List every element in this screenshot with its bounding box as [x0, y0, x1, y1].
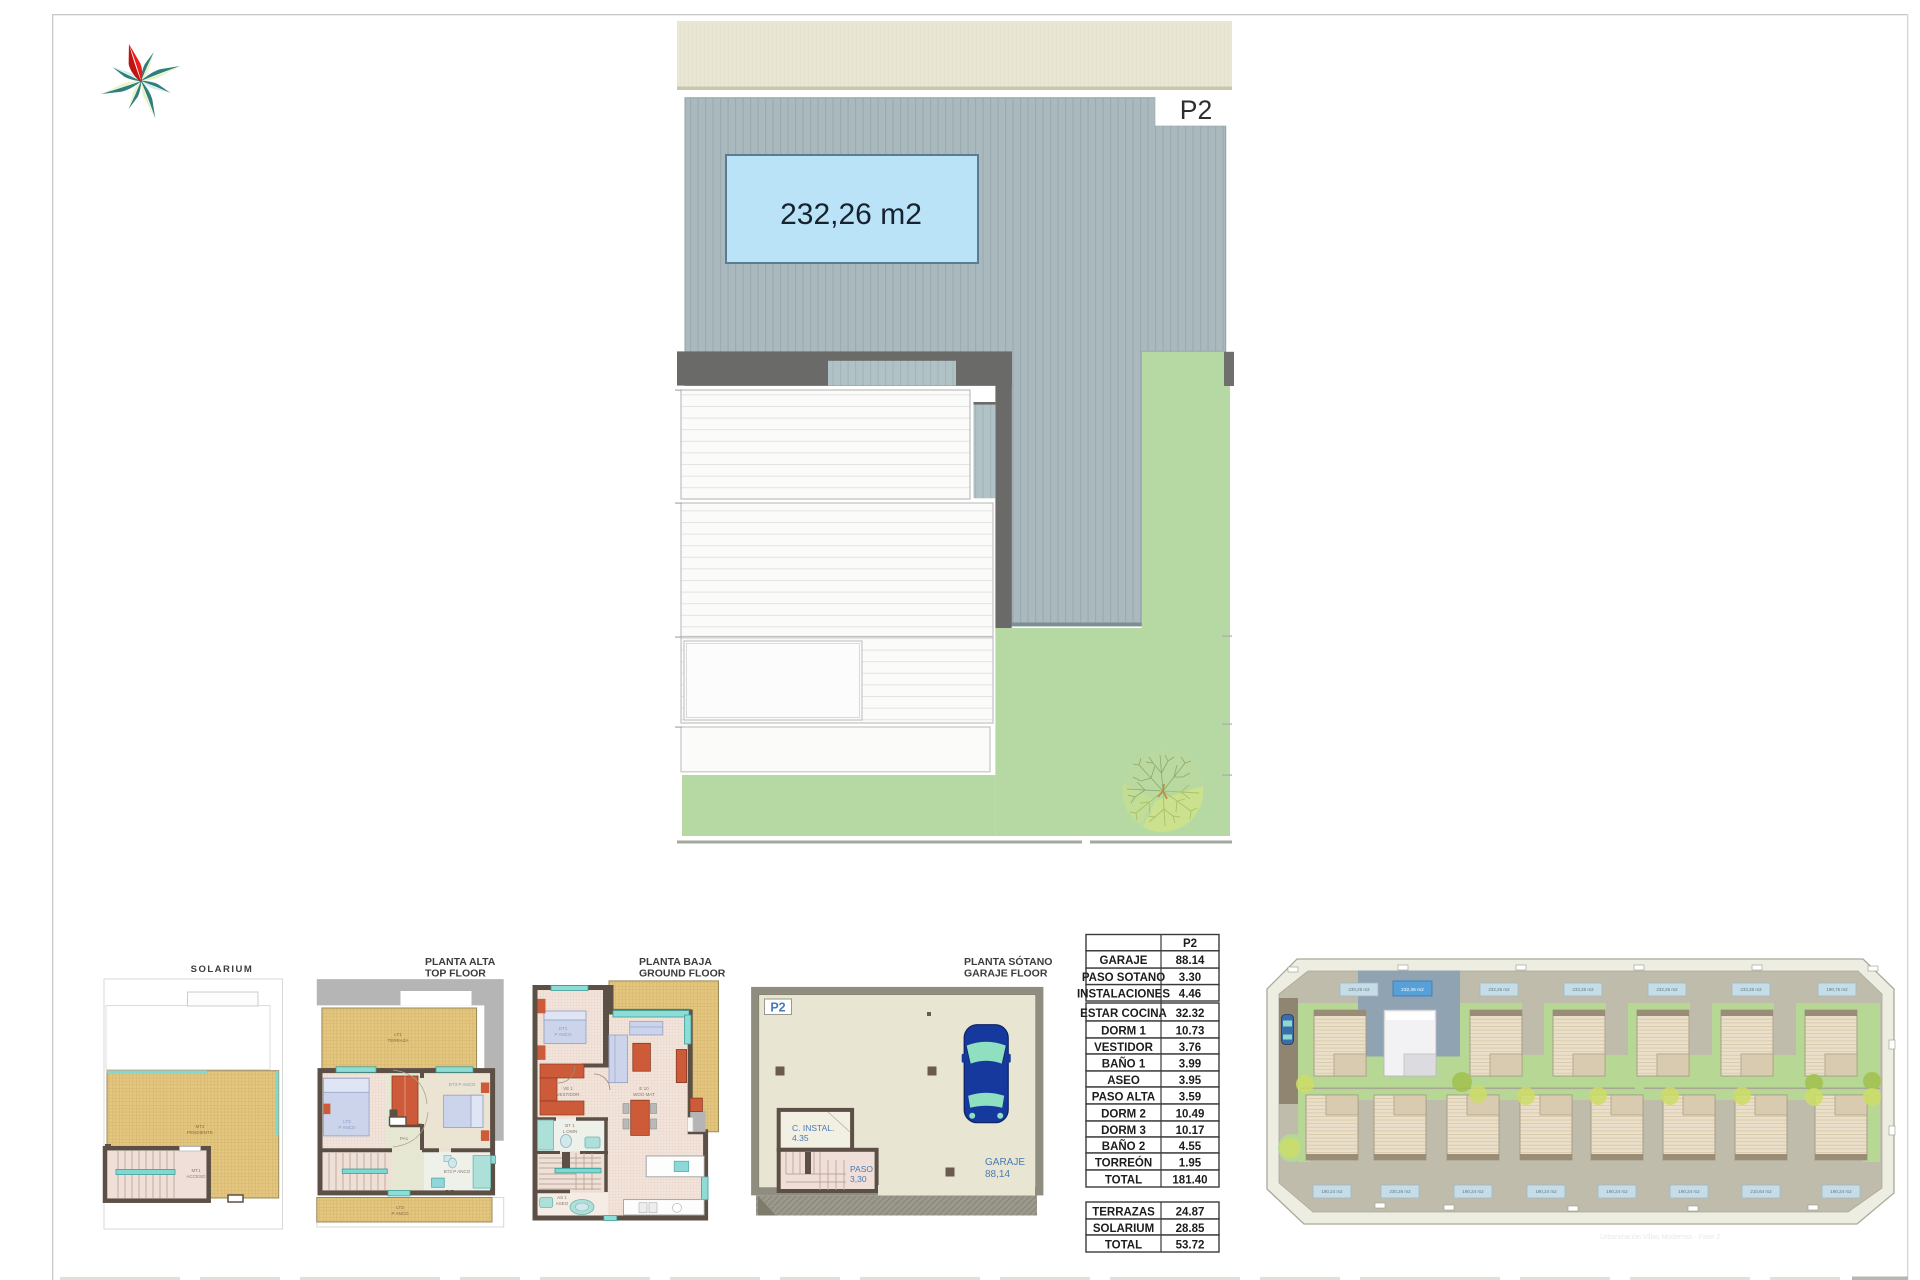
- svg-text:TORREÓN: TORREÓN: [1095, 1157, 1152, 1170]
- svg-text:GROUND FLOOR: GROUND FLOOR: [639, 968, 726, 980]
- svg-text:ASEO: ASEO: [556, 1201, 569, 1206]
- svg-text:P2: P2: [1180, 95, 1212, 125]
- svg-text:3.76: 3.76: [1179, 1042, 1201, 1054]
- svg-text:GARAJE FLOOR: GARAJE FLOOR: [964, 968, 1048, 980]
- svg-text:190,24 m2: 190,24 m2: [1830, 1189, 1852, 1194]
- svg-text:32.32: 32.32: [1176, 1008, 1205, 1020]
- svg-text:190,24 m2: 190,24 m2: [1606, 1189, 1628, 1194]
- svg-text:88,14: 88,14: [985, 1169, 1010, 1180]
- svg-text:230,26 m2: 230,26 m2: [1389, 1189, 1411, 1194]
- svg-text:ESTAR COCINA: ESTAR COCINA: [1080, 1008, 1167, 1020]
- svg-text:10.17: 10.17: [1176, 1125, 1205, 1137]
- svg-text:PLANTA ALTA: PLANTA ALTA: [425, 956, 496, 968]
- svg-text:10.49: 10.49: [1176, 1109, 1205, 1121]
- svg-text:4.35: 4.35: [792, 1133, 809, 1143]
- svg-text:PASO: PASO: [850, 1164, 873, 1174]
- svg-text:190,24 m2: 190,24 m2: [1462, 1189, 1484, 1194]
- svg-text:PASO SOTANO: PASO SOTANO: [1082, 972, 1165, 984]
- svg-text:232,26 m2: 232,26 m2: [1488, 987, 1510, 992]
- svg-text:232,26 m2: 232,26 m2: [780, 198, 922, 231]
- svg-text:L OWN: L OWN: [563, 1129, 578, 1134]
- svg-text:LT1: LT1: [394, 1032, 402, 1037]
- svg-text:4.55: 4.55: [1179, 1141, 1202, 1153]
- svg-text:ACCESO: ACCESO: [186, 1174, 206, 1179]
- svg-text:TOTAL: TOTAL: [1105, 1175, 1142, 1187]
- svg-text:MT2: MT2: [196, 1124, 205, 1129]
- svg-text:ASEO: ASEO: [1107, 1075, 1140, 1087]
- svg-text:190,24 m2: 190,24 m2: [1678, 1189, 1700, 1194]
- svg-text:PASO ALTA: PASO ALTA: [1092, 1092, 1155, 1104]
- svg-text:SOLARIUM: SOLARIUM: [191, 964, 254, 975]
- svg-text:3,30: 3,30: [850, 1174, 867, 1184]
- svg-text:190,24 m2: 190,24 m2: [1321, 1189, 1343, 1194]
- svg-text:VESTIDOR: VESTIDOR: [556, 1092, 580, 1097]
- svg-text:232,26 m2: 232,26 m2: [1572, 987, 1594, 992]
- svg-text:PA1: PA1: [400, 1136, 409, 1141]
- svg-text:PLANTA BAJA: PLANTA BAJA: [639, 956, 712, 968]
- svg-text:190,24 m2: 190,24 m2: [1535, 1189, 1557, 1194]
- svg-text:TOTAL: TOTAL: [1105, 1240, 1142, 1252]
- svg-text:P2: P2: [770, 1001, 785, 1015]
- svg-text:TERRAZAS: TERRAZAS: [1092, 1207, 1155, 1219]
- svg-text:BAÑO 2: BAÑO 2: [1102, 1140, 1145, 1153]
- svg-text:DT1: DT1: [559, 1026, 568, 1031]
- svg-text:1.95: 1.95: [1179, 1158, 1202, 1170]
- svg-text:TOP FLOOR: TOP FLOOR: [425, 968, 486, 980]
- svg-text:C. INSTAL.: C. INSTAL.: [792, 1123, 834, 1133]
- svg-text:53.72: 53.72: [1176, 1240, 1205, 1252]
- svg-text:181.40: 181.40: [1172, 1175, 1207, 1187]
- svg-text:232,26 m2: 232,26 m2: [1656, 987, 1678, 992]
- svg-text:GARAJE: GARAJE: [1100, 955, 1148, 967]
- svg-text:INSTALACIONES: INSTALACIONES: [1077, 989, 1170, 1001]
- svg-text:24.87: 24.87: [1176, 1207, 1205, 1219]
- svg-text:P ANCO: P ANCO: [555, 1032, 572, 1037]
- svg-text:DORM 2: DORM 2: [1101, 1109, 1146, 1121]
- svg-text:DORM 3: DORM 3: [1101, 1125, 1146, 1137]
- svg-text:BAÑO 1: BAÑO 1: [1102, 1058, 1146, 1071]
- svg-text:3.59: 3.59: [1179, 1092, 1201, 1104]
- svg-text:232,26 m2: 232,26 m2: [1740, 987, 1762, 992]
- svg-text:LT3: LT3: [396, 1205, 404, 1210]
- svg-text:210,64 m2: 210,64 m2: [1750, 1189, 1772, 1194]
- svg-text:BT2 P ANCO: BT2 P ANCO: [444, 1169, 471, 1174]
- svg-text:P2: P2: [1183, 938, 1197, 950]
- svg-text:DORM 1: DORM 1: [1101, 1026, 1146, 1038]
- svg-text:3.30: 3.30: [1179, 972, 1201, 984]
- svg-text:4.46: 4.46: [1179, 989, 1201, 1001]
- svg-text:190,75 m2: 190,75 m2: [1826, 987, 1848, 992]
- svg-text:88.14: 88.14: [1176, 955, 1205, 967]
- svg-text:E 10: E 10: [639, 1086, 649, 1091]
- svg-text:MT1: MT1: [192, 1168, 201, 1173]
- svg-text:28.85: 28.85: [1176, 1223, 1205, 1235]
- svg-text:3.95: 3.95: [1179, 1075, 1202, 1087]
- svg-text:3.99: 3.99: [1179, 1059, 1201, 1071]
- svg-text:VE 1: VE 1: [563, 1086, 573, 1091]
- svg-text:LT2: LT2: [343, 1119, 351, 1124]
- svg-text:PLANTA SÓTANO: PLANTA SÓTANO: [964, 955, 1052, 968]
- svg-text:GARAJE: GARAJE: [985, 1157, 1025, 1168]
- svg-text:AS 1: AS 1: [557, 1195, 567, 1200]
- svg-text:VESTIDOR: VESTIDOR: [1094, 1042, 1153, 1054]
- svg-text:TERRAZA: TERRAZA: [387, 1038, 408, 1043]
- svg-text:230,26 m2: 230,26 m2: [1348, 987, 1370, 992]
- svg-text:PENDIENTE: PENDIENTE: [187, 1130, 213, 1135]
- svg-text:BT 1: BT 1: [565, 1123, 575, 1128]
- svg-text:10.73: 10.73: [1176, 1026, 1205, 1038]
- svg-text:WOO MAT: WOO MAT: [633, 1092, 655, 1097]
- svg-text:232,26 m2: 232,26 m2: [1401, 987, 1424, 993]
- svg-text:DT3 P ANCO: DT3 P ANCO: [449, 1082, 476, 1087]
- svg-text:SOLARIUM: SOLARIUM: [1093, 1223, 1154, 1235]
- svg-text:P ANCO: P ANCO: [392, 1211, 409, 1216]
- svg-text:Urbanización Villas Modernas ·: Urbanización Villas Modernas · Fase 2: [1600, 1234, 1720, 1241]
- svg-text:P ANCO: P ANCO: [339, 1125, 356, 1130]
